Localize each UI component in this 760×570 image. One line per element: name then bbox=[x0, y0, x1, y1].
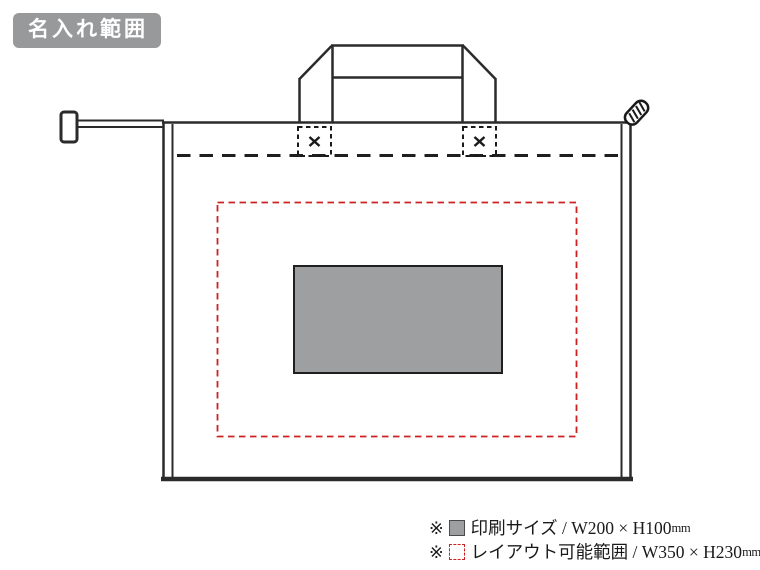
stitch-x-left bbox=[310, 137, 320, 146]
note-mark: ※ bbox=[429, 540, 444, 564]
legend: ※ 印刷サイズ / W200 × H100mm ※ レイアウト可能範囲 / W3… bbox=[429, 516, 760, 564]
carry-handle bbox=[300, 45, 496, 123]
product-print-spec-diagram: 名入れ範囲 ※ 印刷サイズ / W200 × H100mm ※ レイアウト可能範… bbox=[0, 0, 760, 570]
note-mark: ※ bbox=[429, 516, 444, 540]
drawstring-cord-left bbox=[61, 112, 164, 142]
stitch-x-right bbox=[475, 137, 485, 146]
print-size-swatch-icon bbox=[449, 520, 465, 536]
layout-range-swatch-icon bbox=[449, 544, 465, 560]
legend-print-size-label: 印刷サイズ / W200 × H100 bbox=[471, 516, 672, 540]
legend-layout-range-row: ※ レイアウト可能範囲 / W350 × H230mm bbox=[429, 540, 760, 564]
handle-stitch-boxes bbox=[298, 127, 496, 156]
zipper-pull-icon bbox=[622, 98, 651, 127]
print-area-title-badge: 名入れ範囲 bbox=[13, 13, 161, 48]
bag-drawing bbox=[0, 0, 760, 570]
legend-layout-range-unit: mm bbox=[742, 540, 760, 564]
legend-print-size-unit: mm bbox=[672, 516, 691, 540]
legend-layout-range-label: レイアウト可能範囲 / W350 × H230 bbox=[471, 540, 742, 564]
cord-end-cap-icon bbox=[61, 112, 77, 142]
print-area-rect bbox=[294, 266, 502, 373]
legend-print-size-row: ※ 印刷サイズ / W200 × H100mm bbox=[429, 516, 760, 540]
